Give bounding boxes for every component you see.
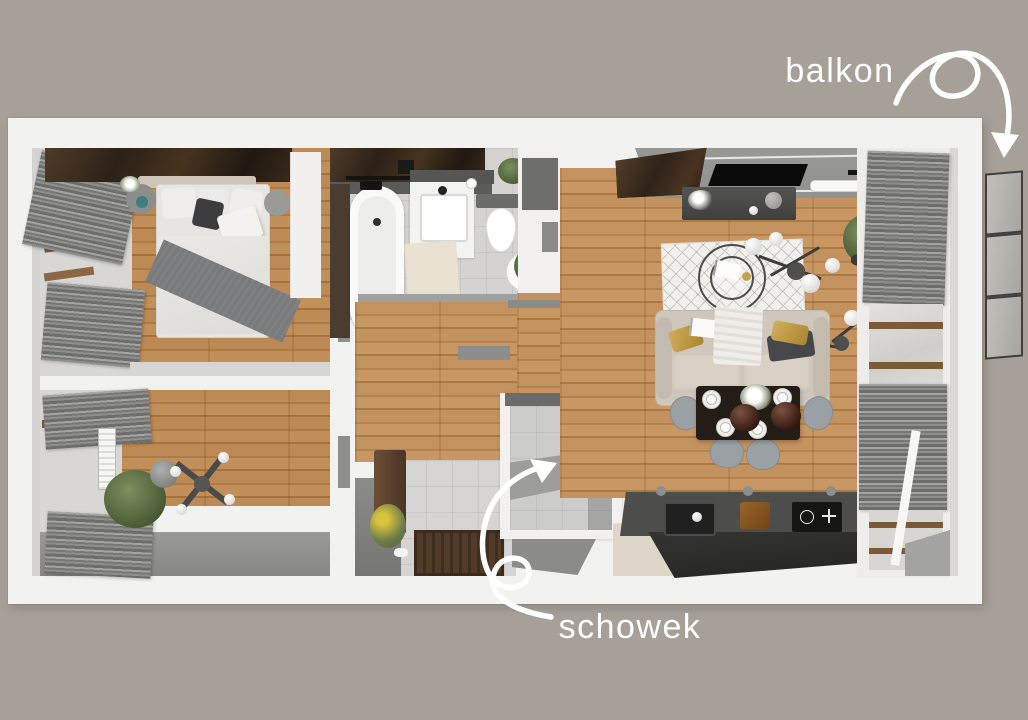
lamp-bulb (176, 504, 187, 515)
hallway-mat (458, 346, 510, 360)
utility-closet-niche (522, 158, 558, 210)
cabinet-knob (743, 486, 753, 496)
bathtub-faucet (360, 181, 382, 190)
bedroom-curtain-bottom (41, 282, 145, 368)
balcony-panel (985, 294, 1023, 359)
doormat (414, 530, 504, 576)
balcony-panel (985, 232, 1023, 297)
toilet-tank (476, 194, 522, 208)
bath-mat (404, 240, 460, 299)
nightstand-decor-teal (136, 196, 148, 208)
lamp-hub (194, 476, 210, 492)
window-sill-marble (869, 304, 943, 386)
dining-plate (702, 390, 721, 409)
nightstand-right (264, 190, 290, 216)
living-curtain-top (862, 151, 949, 306)
living-chandelier (743, 230, 843, 300)
console-flowers (688, 190, 714, 210)
window-frame-bar (869, 322, 943, 329)
sofa-book (689, 318, 717, 339)
chandelier-hub (834, 336, 849, 351)
towel-rail (346, 176, 410, 180)
apartment-plan (8, 118, 982, 604)
room2-lamp (170, 452, 234, 516)
tv-screen (708, 164, 808, 186)
schowek-label: schowek (540, 608, 720, 647)
entry-shoe (394, 548, 408, 557)
tub-platform (330, 184, 350, 338)
chandelier-globe (769, 232, 783, 246)
hallway-wall-edge-2 (508, 300, 568, 308)
kitchen-faucet (692, 512, 702, 522)
vanity-sink (420, 194, 468, 242)
nightstand-flowers (120, 176, 140, 192)
hallway-wall-edge (358, 294, 518, 302)
bathtub-drain (373, 218, 381, 226)
window-wall (857, 148, 950, 578)
floor-plan-scene: balkon schowek (0, 0, 1028, 720)
lamp-bulb (218, 452, 229, 463)
sofa-throw (713, 306, 763, 366)
balcony-railing (985, 170, 1023, 365)
bedroom-lower-wall (130, 362, 330, 376)
window-frame-bar (869, 362, 943, 369)
console-vase-sphere (765, 192, 782, 209)
chandelier-globe (801, 274, 820, 293)
pendant-lamp (771, 402, 801, 430)
sink-faucet (438, 186, 447, 195)
soap-dish (466, 178, 477, 189)
sofa-arm-right (813, 317, 829, 399)
cabinet-knob (656, 486, 666, 496)
balkon-label: balkon (770, 52, 910, 91)
bed-pillow (161, 187, 197, 219)
right-wall-inner-edge (950, 148, 958, 576)
cutting-board (740, 502, 770, 529)
entry-flowers (370, 504, 406, 548)
room2-curtain-top (42, 388, 152, 449)
lamp-bulb (224, 494, 235, 505)
balcony-panel (985, 170, 1023, 235)
stove-burner-icon (800, 510, 814, 524)
bedroom-wardrobe (290, 152, 321, 298)
chandelier-globe (745, 238, 762, 255)
schowek-floor-shadow (512, 539, 596, 575)
stove-cooktop (792, 502, 842, 532)
chandelier-globe (825, 258, 840, 273)
cabinet-knob (826, 486, 836, 496)
kitchen-sink (664, 502, 716, 536)
stove-cross-icon (828, 509, 830, 523)
room2-door-leaf (338, 436, 350, 488)
pendant-lamp (730, 404, 760, 432)
console-small-vase (749, 206, 758, 215)
lamp-bulb (170, 466, 181, 477)
utility-closet-niche-small (542, 222, 558, 252)
sofa-arm-left (656, 317, 672, 399)
hallway-floor (355, 302, 517, 462)
